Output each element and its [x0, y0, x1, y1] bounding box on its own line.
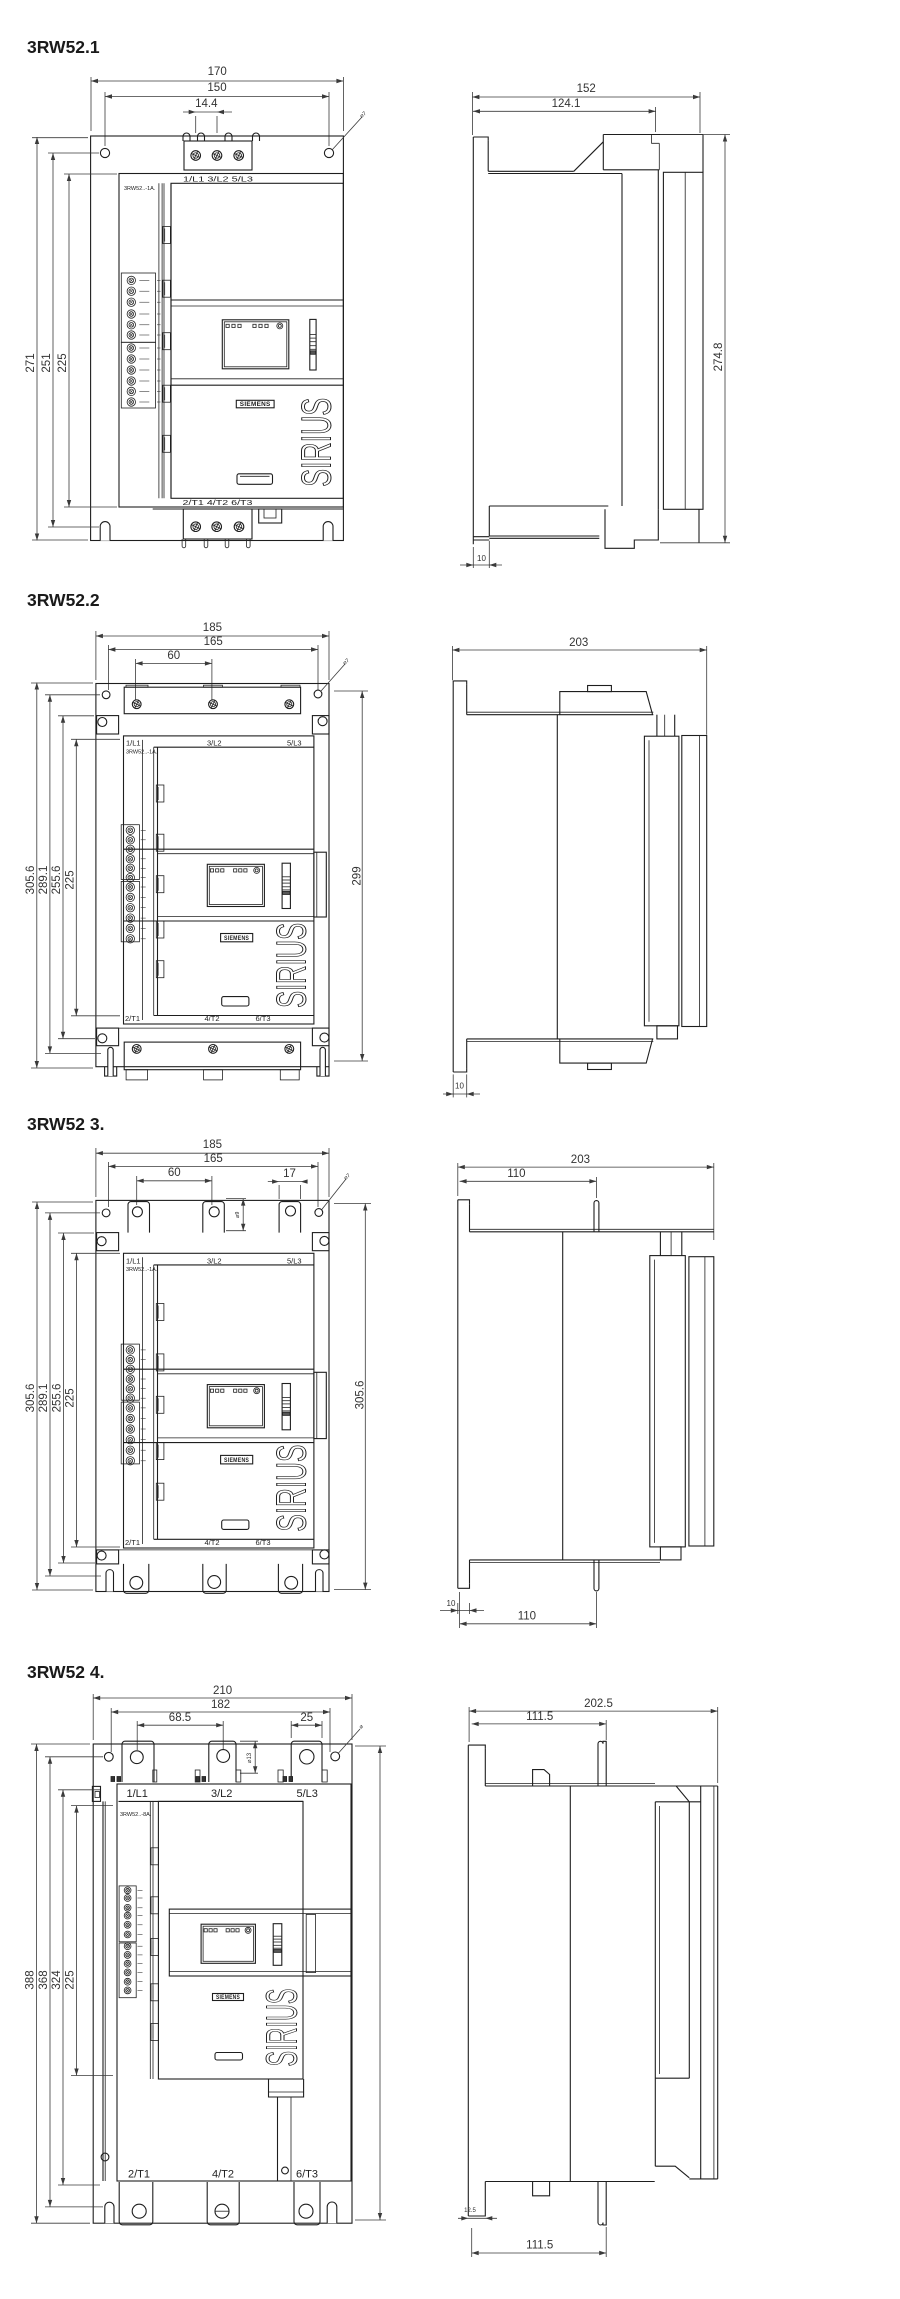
svg-text:1/L1 3/L2 5/L3: 1/L1 3/L2 5/L3 — [183, 175, 253, 184]
svg-text:6/T3: 6/T3 — [255, 1014, 270, 1023]
svg-text:3RW52..-1A.: 3RW52..-1A. — [126, 1267, 158, 1273]
svg-text:6/T3: 6/T3 — [255, 1538, 270, 1547]
svg-text:124.1: 124.1 — [552, 98, 581, 110]
svg-text:5/L3: 5/L3 — [296, 1788, 317, 1800]
svg-text:12.5: 12.5 — [464, 2208, 476, 2214]
svg-text:251: 251 — [41, 353, 53, 372]
svg-text:210: 210 — [213, 1685, 232, 1697]
svg-text:17: 17 — [283, 1168, 296, 1180]
svg-text:25: 25 — [300, 1712, 313, 1724]
svg-text:202.5: 202.5 — [584, 1698, 613, 1710]
svg-text:68.5: 68.5 — [169, 1712, 191, 1724]
svg-text:225: 225 — [65, 1970, 77, 1989]
svg-text:388: 388 — [25, 1970, 37, 1989]
svg-text:2/T1: 2/T1 — [125, 1538, 140, 1547]
svg-text:3RW52 3.: 3RW52 3. — [27, 1114, 105, 1134]
svg-text:1/L1: 1/L1 — [126, 1256, 141, 1265]
svg-text:170: 170 — [208, 66, 227, 78]
svg-text:3RW52.1: 3RW52.1 — [27, 37, 100, 57]
svg-text:SIEMENS: SIEMENS — [240, 401, 271, 408]
svg-text:111.5: 111.5 — [526, 2240, 553, 2252]
svg-text:SIRIUS: SIRIUS — [267, 923, 314, 1008]
svg-text:289.1: 289.1 — [38, 866, 50, 895]
svg-text:110: 110 — [507, 1168, 525, 1180]
svg-text:3RW52 4.: 3RW52 4. — [27, 1662, 105, 1682]
svg-text:165: 165 — [204, 1153, 223, 1165]
svg-text:10: 10 — [477, 554, 486, 563]
svg-text:4/T2: 4/T2 — [204, 1014, 219, 1023]
svg-text:3RW52..-1A.: 3RW52..-1A. — [126, 749, 158, 755]
svg-text:SIEMENS: SIEMENS — [224, 1457, 249, 1464]
svg-text:3RW52..-1A.: 3RW52..-1A. — [124, 186, 156, 192]
svg-text:305.6: 305.6 — [25, 1384, 37, 1413]
svg-text:14.4: 14.4 — [195, 98, 218, 110]
svg-text:SIEMENS: SIEMENS — [216, 1994, 240, 2001]
svg-text:225: 225 — [57, 353, 69, 372]
svg-text:5/L3: 5/L3 — [287, 1256, 302, 1265]
svg-text:2/T1 4/T2 6/T3: 2/T1 4/T2 6/T3 — [183, 498, 253, 507]
svg-text:165: 165 — [204, 636, 223, 648]
svg-text:1/L1: 1/L1 — [126, 1788, 147, 1800]
svg-text:1/L1: 1/L1 — [126, 739, 141, 748]
svg-text:SIRIUS: SIRIUS — [267, 1445, 314, 1532]
svg-text:3RW52..-8A.: 3RW52..-8A. — [120, 1812, 152, 1818]
svg-text:4/T2: 4/T2 — [204, 1538, 219, 1547]
svg-text:60: 60 — [167, 650, 180, 662]
svg-text:10: 10 — [455, 1081, 464, 1090]
svg-text:2/T1: 2/T1 — [128, 2169, 150, 2181]
svg-text:⌀9: ⌀9 — [235, 1212, 241, 1218]
svg-text:2/T1: 2/T1 — [125, 1014, 140, 1023]
svg-text:182: 182 — [211, 1699, 230, 1711]
svg-text:203: 203 — [569, 637, 588, 649]
svg-text:10: 10 — [447, 1599, 456, 1608]
svg-text:203: 203 — [571, 1154, 590, 1166]
svg-text:4/T2: 4/T2 — [212, 2169, 234, 2181]
svg-text:152: 152 — [577, 83, 596, 95]
svg-text:225: 225 — [64, 870, 76, 889]
svg-text:SIRIUS: SIRIUS — [292, 398, 339, 487]
svg-text:6/T3: 6/T3 — [296, 2169, 318, 2181]
svg-text:368: 368 — [38, 1970, 50, 1989]
svg-text:185: 185 — [203, 1139, 222, 1151]
svg-text:150: 150 — [207, 82, 226, 94]
svg-text:305.6: 305.6 — [355, 1381, 367, 1410]
svg-text:225: 225 — [65, 1388, 77, 1407]
svg-text:3/L2: 3/L2 — [207, 1256, 222, 1265]
svg-text:SIRIUS: SIRIUS — [258, 1989, 307, 2067]
svg-text:271: 271 — [25, 353, 37, 372]
svg-text:111.5: 111.5 — [526, 1711, 553, 1723]
svg-text:3/L2: 3/L2 — [207, 739, 222, 748]
svg-text:305.6: 305.6 — [25, 866, 37, 895]
svg-text:299: 299 — [352, 866, 364, 885]
svg-text:5/L3: 5/L3 — [287, 739, 302, 748]
svg-text:60: 60 — [168, 1167, 181, 1179]
svg-text:3RW52.2: 3RW52.2 — [27, 590, 100, 610]
svg-text:289.1: 289.1 — [38, 1384, 50, 1413]
svg-text:3/L2: 3/L2 — [211, 1788, 232, 1800]
svg-text:185: 185 — [203, 622, 222, 634]
svg-text:255.6: 255.6 — [51, 866, 63, 895]
svg-text:324: 324 — [51, 1970, 63, 1990]
svg-text:274.8: 274.8 — [713, 343, 725, 372]
svg-text:⌀13: ⌀13 — [247, 1752, 253, 1763]
svg-text:255.6: 255.6 — [52, 1384, 64, 1413]
svg-text:SIEMENS: SIEMENS — [224, 935, 249, 942]
svg-text:110: 110 — [518, 1611, 536, 1623]
